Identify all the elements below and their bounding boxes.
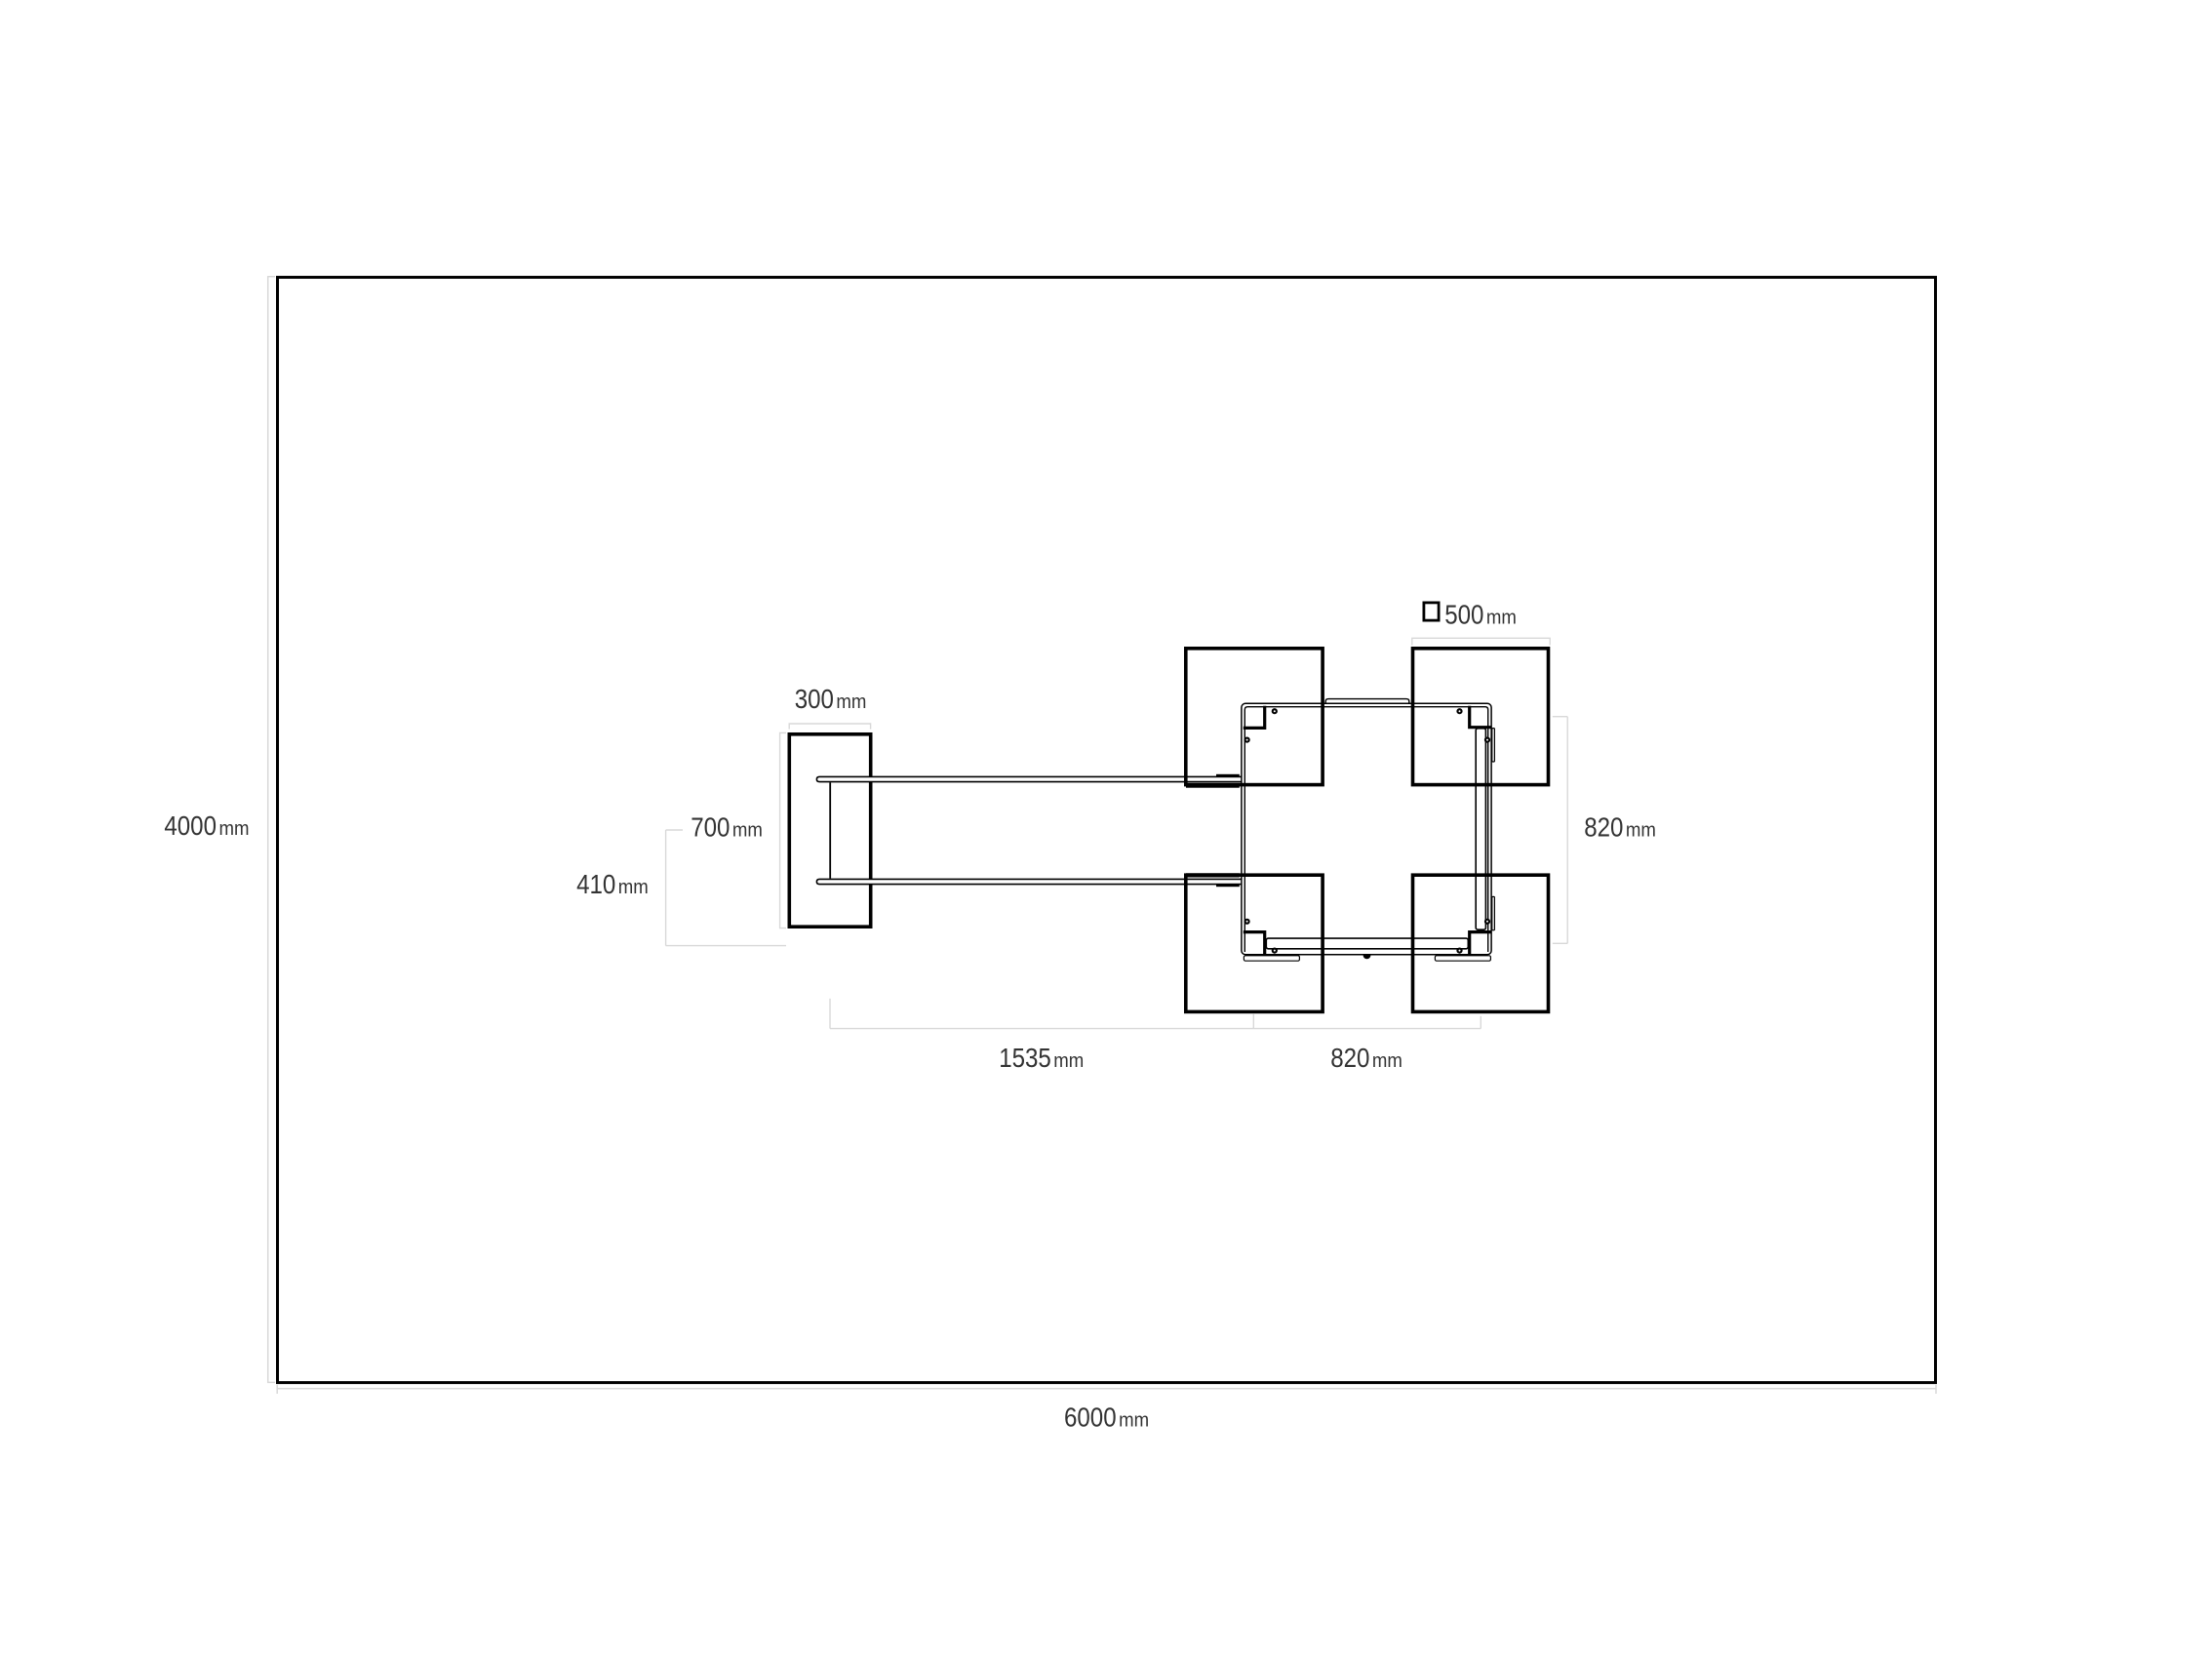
svg-text:6000: 6000	[1064, 1401, 1117, 1432]
svg-text:1535: 1535	[999, 1042, 1051, 1073]
svg-text:700: 700	[691, 810, 730, 842]
svg-text:mm: mm	[1053, 1050, 1084, 1072]
svg-text:mm: mm	[1626, 819, 1656, 841]
svg-text:mm: mm	[1486, 608, 1517, 629]
svg-text:mm: mm	[1119, 1409, 1149, 1431]
svg-text:mm: mm	[836, 691, 866, 713]
svg-text:mm: mm	[732, 819, 763, 841]
svg-text:500: 500	[1444, 599, 1483, 630]
svg-text:mm: mm	[618, 877, 649, 898]
svg-text:mm: mm	[1372, 1050, 1402, 1072]
svg-text:300: 300	[795, 683, 834, 714]
svg-text:820: 820	[1584, 810, 1623, 842]
svg-text:4000: 4000	[164, 810, 217, 841]
svg-text:mm: mm	[219, 818, 250, 840]
svg-text:410: 410	[576, 868, 615, 899]
svg-text:820: 820	[1330, 1042, 1369, 1073]
